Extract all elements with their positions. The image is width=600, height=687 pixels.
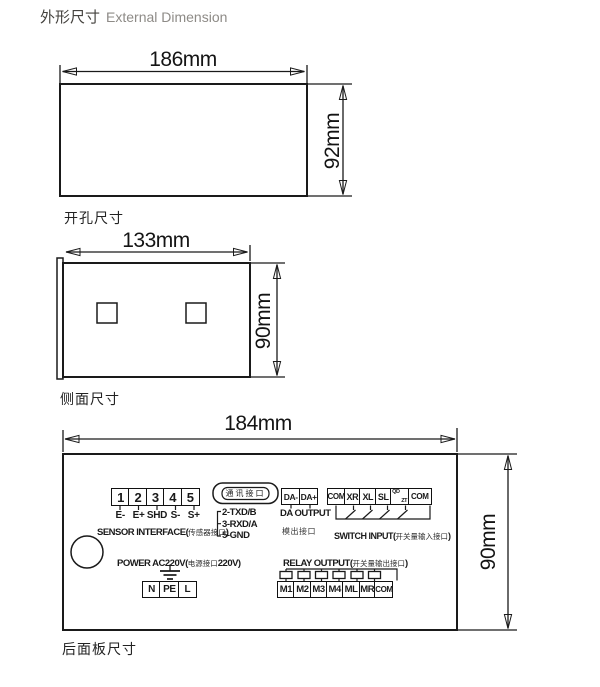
sensor-pin-labels: E- E+ SHD S- S+: [111, 510, 203, 521]
pin-e-minus: E-: [111, 510, 129, 521]
front-width-dimension-label: 186mm: [123, 48, 243, 72]
page-title: 外形尺寸External Dimension: [40, 6, 227, 27]
power-label-tail: 220V): [218, 558, 241, 569]
da-output-label-zh: 模出接口: [282, 526, 316, 537]
front-height-dimension-label: 92mm: [321, 106, 345, 176]
terminal-m4: M4: [326, 581, 344, 598]
terminal-1: 1: [111, 488, 130, 506]
terminal-5: 5: [181, 488, 200, 506]
terminal-m3: M3: [310, 581, 328, 598]
front-view-outline: [60, 84, 307, 196]
terminal-da-minus: DA-: [281, 488, 301, 505]
mounting-clip-right: [186, 303, 206, 323]
power-label: POWER AC220V(电源接口220V): [117, 553, 241, 571]
switch-input-label-close: ): [448, 531, 451, 541]
relay-output-label-en: RELAY OUTPUT(: [283, 558, 353, 569]
sensor-interface-label-zh: 传感器接口: [188, 528, 226, 537]
sensor-interface-label: SENSOR INTERFACE(传感器接口): [97, 522, 228, 540]
switch-input-label-en: SWITCH INPUT(: [334, 531, 396, 541]
back-height-dimension-label: 90mm: [477, 507, 501, 577]
terminal-ml: ML: [342, 581, 360, 598]
pin-e-plus: E+: [129, 510, 147, 521]
switch-contact-symbol: [363, 510, 373, 519]
terminal-mr: MR: [359, 581, 377, 598]
fuse-holder-circle: [71, 536, 103, 568]
pin-s-minus: S-: [166, 510, 184, 521]
terminal-qd-label: QD: [392, 489, 399, 495]
sensor-terminal-block: 1 2 3 4 5: [111, 488, 200, 506]
terminal-n: N: [142, 581, 161, 598]
relay-output-label-close: ): [405, 558, 408, 569]
terminal-4: 4: [163, 488, 182, 506]
front-view-figure: [60, 65, 352, 196]
comm-pin-txd: 2-TXD/B: [222, 507, 256, 518]
switch-contact-symbol: [398, 510, 408, 519]
terminal-relay-com: COM: [374, 581, 393, 598]
back-panel-caption: 后面板尺寸: [62, 639, 137, 659]
relay-output-label-zh: 开关量输出接口: [353, 559, 406, 568]
da-terminal-block: DA- DA+: [281, 488, 318, 505]
terminal-da-plus: DA+: [299, 488, 319, 505]
pin-shd: SHD: [148, 510, 166, 521]
relay-output-label: RELAY OUTPUT(开关量输出接口): [283, 553, 408, 571]
side-view-figure: [57, 245, 285, 379]
switch-input-bracket: [336, 506, 430, 520]
power-label-zh: 电源接口: [188, 559, 218, 568]
comm-pin-gnd: 5-GND: [222, 530, 250, 541]
terminal-m2: M2: [293, 581, 311, 598]
page-title-en: External Dimension: [106, 9, 227, 25]
terminal-zt-label: ZT: [401, 498, 407, 504]
switch-contact-symbol: [380, 510, 390, 519]
terminal-com-2: COM: [408, 488, 433, 505]
comm-pin-rxd: 3-RXD/A: [222, 519, 257, 530]
terminal-2: 2: [128, 488, 147, 506]
terminal-3: 3: [146, 488, 165, 506]
relay-terminal-block: M1 M2 M3 M4 ML MR COM: [277, 581, 393, 598]
page-title-zh: 外形尺寸: [40, 9, 100, 26]
terminal-l: L: [178, 581, 197, 598]
side-view-body: [63, 263, 250, 377]
switch-terminal-block: COM XR XL SL QD ZT COM: [327, 488, 432, 505]
comm-port-label: 通讯接口: [222, 488, 269, 500]
front-view-caption: 开孔尺寸: [64, 208, 124, 228]
mounting-clip-left: [97, 303, 117, 323]
terminal-com-1: COM: [327, 488, 346, 505]
sensor-interface-label-en: SENSOR INTERFACE(: [97, 527, 188, 538]
terminal-qd-zt: QD ZT: [390, 488, 409, 505]
side-width-dimension-label: 133mm: [96, 229, 216, 253]
dimension-drawing-page: 外形尺寸External Dimension 186mm 92mm 开孔尺寸 1…: [0, 0, 600, 687]
terminal-pe: PE: [159, 581, 179, 598]
power-label-en: POWER AC220V(: [117, 558, 188, 569]
side-height-dimension-label: 90mm: [252, 286, 276, 356]
terminal-m1: M1: [277, 581, 295, 598]
pin-s-plus: S+: [185, 510, 203, 521]
power-terminal-block: N PE L: [142, 581, 197, 598]
da-output-label: DA OUTPUT: [280, 508, 331, 519]
switch-input-label: SWITCH INPUT(开关量输入接口): [334, 526, 451, 544]
switch-input-label-zh: 开关量输入接口: [396, 532, 449, 541]
side-view-caption: 侧面尺寸: [60, 389, 120, 409]
switch-contact-symbol: [346, 510, 356, 519]
back-width-dimension-label: 184mm: [198, 412, 318, 436]
